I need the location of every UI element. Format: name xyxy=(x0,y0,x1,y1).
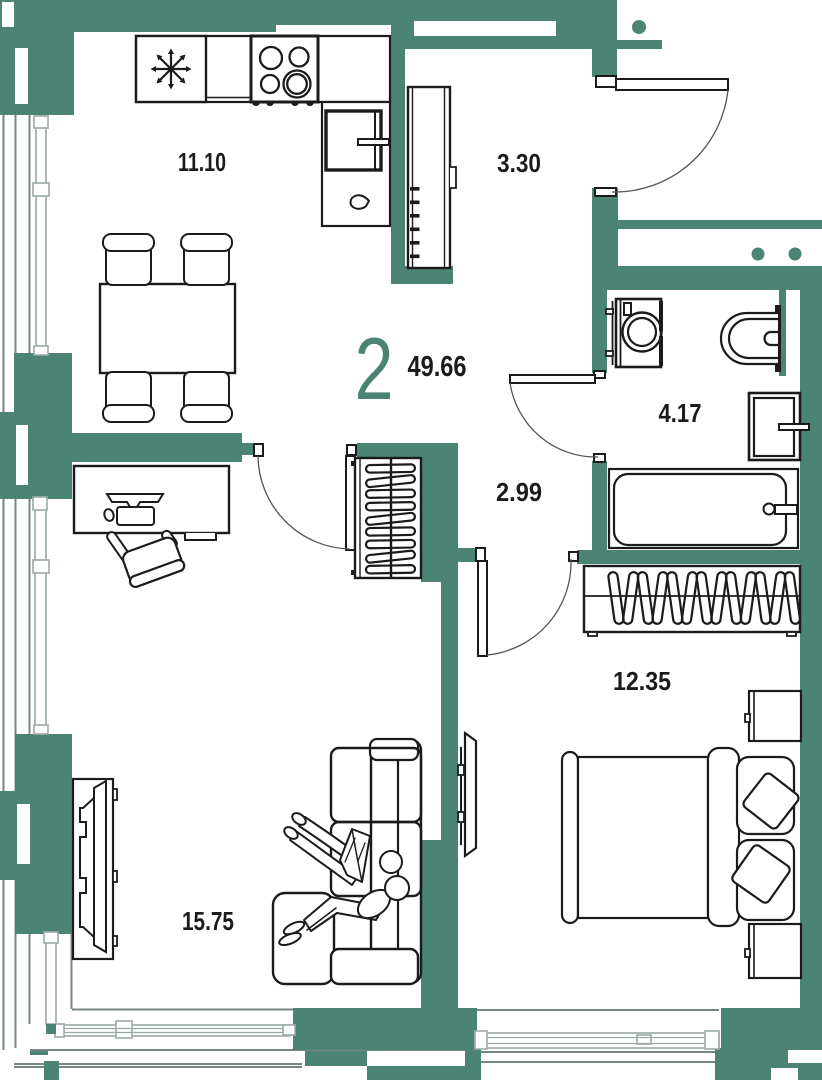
svg-text:2.99: 2.99 xyxy=(496,477,542,507)
svg-text:49.66: 49.66 xyxy=(408,351,467,383)
svg-text:4.17: 4.17 xyxy=(659,398,702,428)
svg-text:12.35: 12.35 xyxy=(613,666,671,696)
svg-text:3.30: 3.30 xyxy=(497,150,541,178)
svg-text:2: 2 xyxy=(355,319,394,418)
svg-text:15.75: 15.75 xyxy=(182,906,234,936)
svg-text:11.10: 11.10 xyxy=(178,149,226,177)
